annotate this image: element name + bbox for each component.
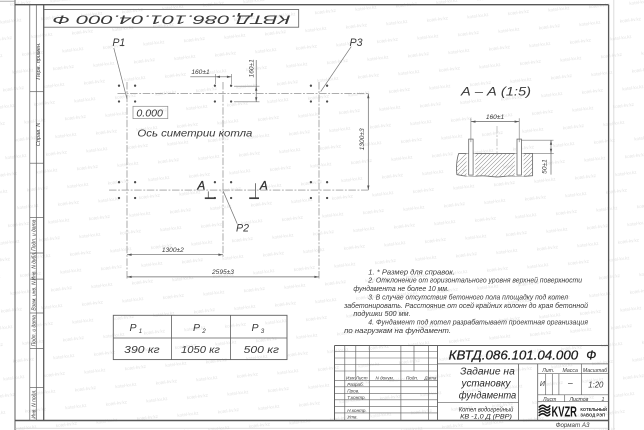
svg-text:Н.контр.: Н.контр. bbox=[347, 408, 366, 413]
svg-text:Лист: Лист bbox=[542, 397, 557, 403]
svg-text:А – А (1:5): А – А (1:5) bbox=[460, 85, 531, 99]
svg-text:3: 3 bbox=[261, 328, 265, 335]
svg-text:по нагрузкам на фундамент.: по нагрузкам на фундамент. bbox=[344, 326, 451, 335]
svg-text:160±1: 160±1 bbox=[486, 114, 505, 121]
svg-text:Котел водогрейный: Котел водогрейный bbox=[459, 406, 514, 413]
svg-text:1300±2: 1300±2 bbox=[162, 247, 184, 254]
svg-text:1:20: 1:20 bbox=[588, 381, 604, 390]
svg-text:Листов: Листов bbox=[569, 397, 589, 403]
svg-text:Перв. примен.: Перв. примен. bbox=[36, 42, 42, 79]
svg-text:Р: Р bbox=[251, 322, 258, 334]
svg-text:1300±3: 1300±3 bbox=[359, 128, 366, 150]
svg-text:N докум.: N докум. bbox=[376, 375, 395, 380]
svg-text:0.000: 0.000 bbox=[136, 109, 163, 120]
svg-text:500 кг: 500 кг bbox=[244, 345, 279, 356]
svg-text:Дата: Дата bbox=[423, 375, 437, 380]
svg-text:390 кг: 390 кг bbox=[124, 345, 159, 356]
svg-text:Т.контр.: Т.контр. bbox=[347, 395, 366, 400]
svg-text:Пров.: Пров. bbox=[347, 388, 359, 393]
svg-text:Справ. N: Справ. N bbox=[36, 122, 42, 146]
svg-text:фундамента: фундамента bbox=[459, 390, 517, 402]
svg-text:Ось симетрии котла: Ось симетрии котла bbox=[137, 128, 252, 139]
svg-text:1050 кг: 1050 кг bbox=[181, 345, 220, 356]
svg-text:Р1: Р1 bbox=[112, 37, 125, 49]
svg-text:Формат А3: Формат А3 bbox=[556, 422, 590, 429]
svg-text:KVZR: KVZR bbox=[552, 403, 577, 420]
svg-text:–: – bbox=[567, 377, 573, 387]
svg-text:2: 2 bbox=[201, 328, 206, 335]
svg-text:КВ -1,0 Д (РВР): КВ -1,0 Д (РВР) bbox=[460, 413, 512, 420]
svg-text:Р2: Р2 bbox=[236, 223, 249, 235]
svg-text:160±1: 160±1 bbox=[191, 69, 210, 76]
svg-text:А: А bbox=[259, 179, 268, 193]
svg-text:Подп. и дата: Подп. и дата bbox=[32, 219, 38, 251]
svg-text:Подп.: Подп. bbox=[406, 375, 418, 380]
svg-text:Подп. и дата: Подп. и дата bbox=[32, 315, 38, 347]
svg-text:Инв. N подл.: Инв. N подл. bbox=[32, 389, 38, 418]
svg-text:А: А bbox=[196, 179, 205, 193]
svg-text:КВТД.086.101.04.000 Ф: КВТД.086.101.04.000 Ф bbox=[52, 13, 290, 27]
svg-text:Р: Р bbox=[193, 322, 200, 334]
svg-text:Ф: Ф bbox=[586, 349, 596, 363]
svg-text:2595±3: 2595±3 bbox=[211, 269, 234, 276]
svg-text:Р3: Р3 bbox=[350, 37, 363, 49]
svg-text:Масса: Масса bbox=[563, 368, 578, 374]
svg-text:Изм.Лист: Изм.Лист bbox=[346, 375, 368, 380]
svg-text:1: 1 bbox=[602, 397, 605, 403]
svg-text:КВТД.086.101.04.000: КВТД.086.101.04.000 bbox=[449, 349, 579, 363]
svg-text:50±1: 50±1 bbox=[542, 159, 549, 174]
svg-text:Взам. инв. N: Взам. инв. N bbox=[32, 281, 38, 311]
svg-text:Разраб.: Разраб. bbox=[347, 382, 364, 387]
svg-text:Утв.: Утв. bbox=[347, 414, 357, 419]
svg-text:Лит.: Лит. bbox=[541, 368, 554, 374]
svg-text:КОТЕЛЬНЫЙ: КОТЕЛЬНЫЙ bbox=[580, 405, 607, 412]
svg-text:Инв. N дубл.: Инв. N дубл. bbox=[32, 252, 38, 281]
svg-text:Р: Р bbox=[129, 322, 136, 334]
svg-text:Масштаб: Масштаб bbox=[583, 368, 608, 374]
svg-text:Задание на: Задание на bbox=[460, 367, 515, 378]
svg-text:1: 1 bbox=[139, 328, 142, 335]
svg-text:160±1: 160±1 bbox=[248, 59, 255, 78]
svg-text:установку: установку bbox=[461, 378, 512, 389]
svg-text:ЗАВОД РЭП: ЗАВОД РЭП bbox=[580, 412, 605, 417]
